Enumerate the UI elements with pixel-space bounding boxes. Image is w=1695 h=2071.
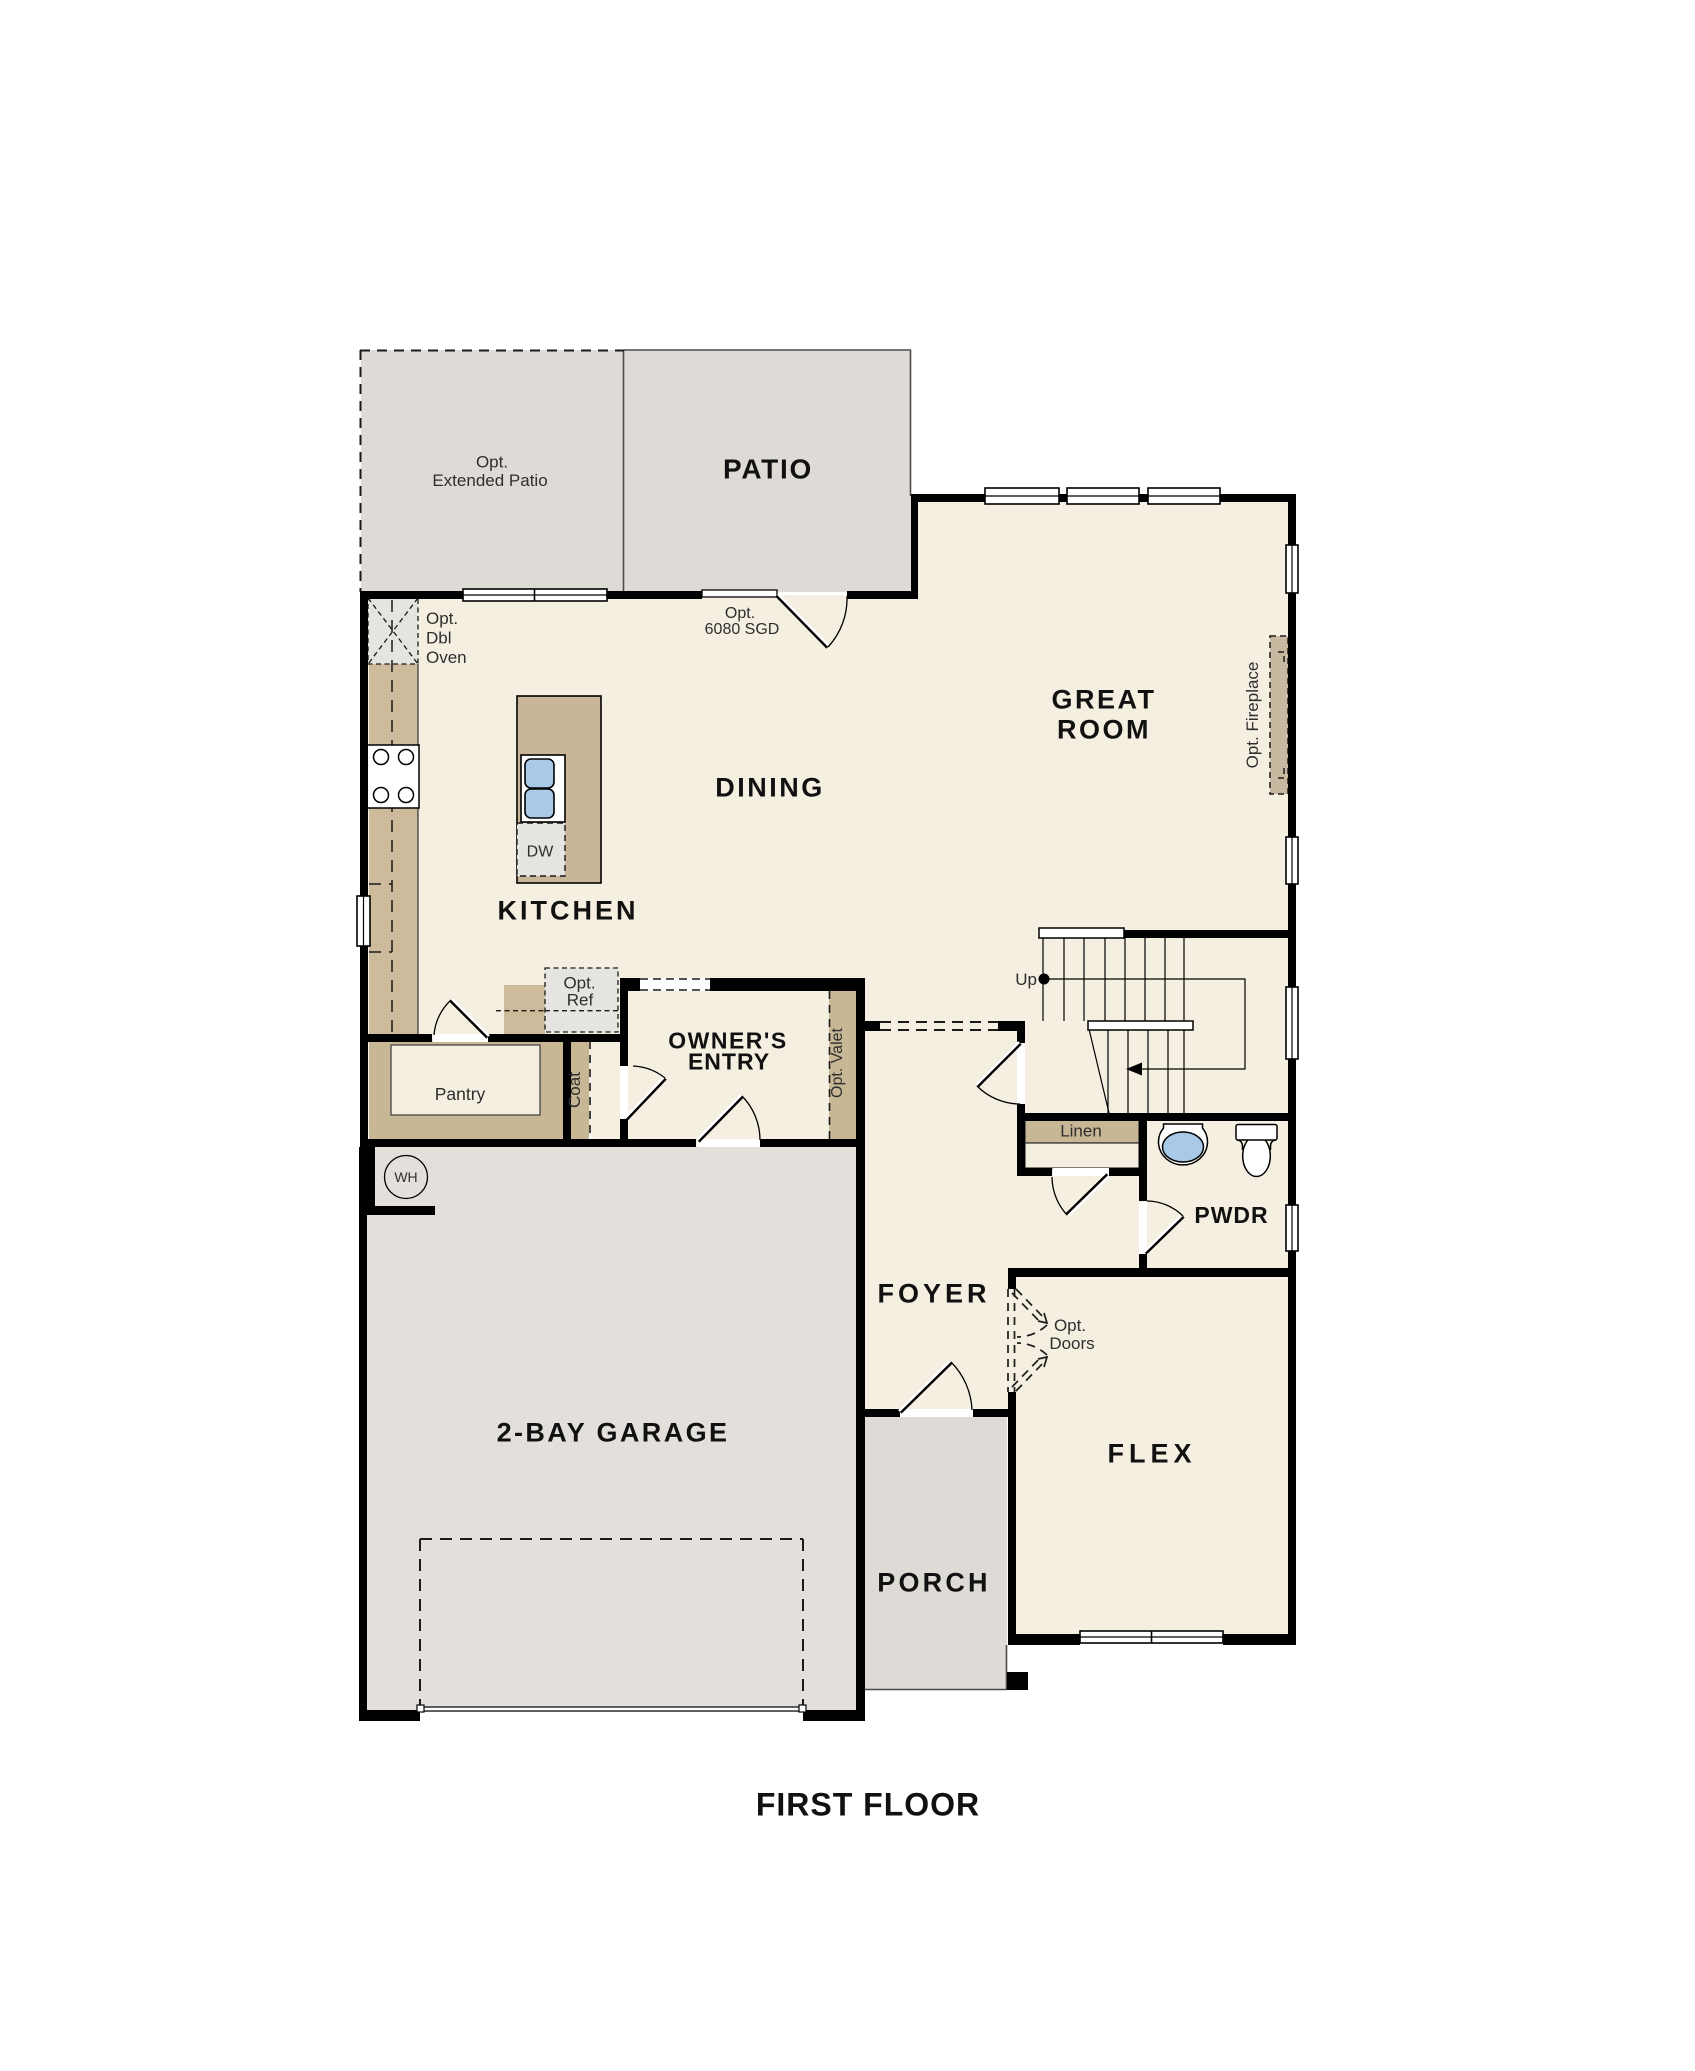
svg-text:Coat: Coat xyxy=(565,1072,584,1108)
svg-text:Opt. Valet: Opt. Valet xyxy=(829,1027,846,1098)
svg-text:Opt. Fireplace: Opt. Fireplace xyxy=(1243,662,1262,769)
svg-text:ENTRY: ENTRY xyxy=(688,1049,770,1075)
svg-text:Ref: Ref xyxy=(567,991,594,1010)
svg-text:Opt.: Opt. xyxy=(426,609,458,628)
svg-text:FIRST FLOOR: FIRST FLOOR xyxy=(756,1787,980,1823)
svg-text:ROOM: ROOM xyxy=(1057,715,1151,745)
svg-text:Pantry: Pantry xyxy=(435,1084,486,1104)
svg-text:DINING: DINING xyxy=(715,773,825,803)
svg-text:Doors: Doors xyxy=(1049,1334,1094,1353)
svg-text:Opt.: Opt. xyxy=(1054,1316,1086,1335)
svg-text:Dbl: Dbl xyxy=(426,629,452,648)
svg-text:Extended Patio: Extended Patio xyxy=(432,471,547,490)
svg-text:Linen: Linen xyxy=(1060,1122,1102,1141)
svg-text:FOYER: FOYER xyxy=(877,1279,990,1309)
svg-text:FLEX: FLEX xyxy=(1107,1439,1196,1469)
svg-text:GREAT: GREAT xyxy=(1052,685,1157,715)
svg-text:Opt.: Opt. xyxy=(725,605,755,622)
svg-text:Opt.: Opt. xyxy=(476,453,508,472)
svg-text:6080 SGD: 6080 SGD xyxy=(705,621,780,638)
svg-text:PWDR: PWDR xyxy=(1194,1202,1268,1228)
svg-text:Oven: Oven xyxy=(426,648,467,667)
svg-text:2-BAY GARAGE: 2-BAY GARAGE xyxy=(497,1418,730,1448)
svg-text:KITCHEN: KITCHEN xyxy=(498,896,639,926)
svg-text:Up: Up xyxy=(1015,970,1037,989)
svg-text:WH: WH xyxy=(394,1169,417,1185)
svg-text:DW: DW xyxy=(527,844,555,861)
svg-text:PORCH: PORCH xyxy=(877,1568,991,1598)
svg-text:PATIO: PATIO xyxy=(723,454,813,485)
